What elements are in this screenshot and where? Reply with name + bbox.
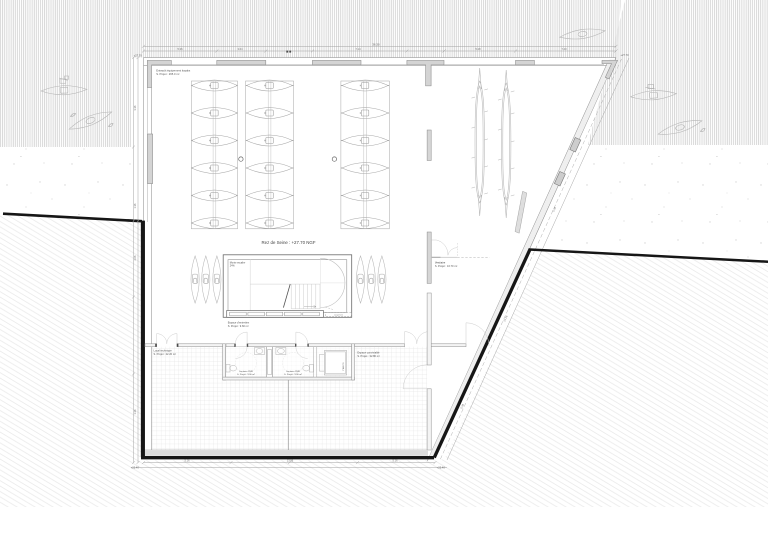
svg-text:Sanitaire PMR: Sanitaire PMR bbox=[286, 370, 301, 373]
svg-text:2.06: 2.06 bbox=[133, 255, 137, 261]
svg-text:S. Projet : 3.90 m²: S. Projet : 3.90 m² bbox=[284, 373, 302, 376]
svg-text:Vestiaire: Vestiaire bbox=[435, 260, 446, 264]
svg-text:Espace d’entretien: Espace d’entretien bbox=[228, 320, 250, 324]
svg-text:Local technique: Local technique bbox=[154, 349, 173, 353]
svg-text:5.16: 5.16 bbox=[184, 459, 190, 463]
svg-text:+27.70: +27.70 bbox=[134, 53, 143, 57]
svg-text:Entrepôt équipement kayaks: Entrepôt équipement kayaks bbox=[156, 69, 191, 73]
svg-text:5.28: 5.28 bbox=[475, 47, 481, 51]
svg-text:36.30: 36.30 bbox=[372, 42, 380, 46]
svg-text:+27.70: +27.70 bbox=[621, 53, 630, 57]
svg-text:3.64: 3.64 bbox=[237, 47, 243, 51]
svg-text:5.36: 5.36 bbox=[177, 47, 183, 51]
svg-text:rangement: rangement bbox=[334, 314, 344, 317]
svg-text:7.43: 7.43 bbox=[561, 47, 567, 51]
svg-text:S. Projet : 9.60 m²: S. Projet : 9.60 m² bbox=[228, 324, 249, 328]
svg-text:S. Projet : 22.20 m²: S. Projet : 22.20 m² bbox=[154, 352, 176, 356]
svg-text:+22.40: +22.40 bbox=[131, 466, 140, 470]
svg-text:+22.40: +22.40 bbox=[437, 466, 446, 470]
svg-text:Rez de Seine : +27.70 NGF: Rez de Seine : +27.70 NGF bbox=[261, 240, 315, 245]
svg-text:CTA ECS: CTA ECS bbox=[342, 362, 345, 371]
svg-text:5.16: 5.16 bbox=[392, 459, 398, 463]
svg-text:S. Projet : 265.0 m²: S. Projet : 265.0 m² bbox=[156, 72, 179, 76]
svg-text:S. Projet : 32.80 m²: S. Projet : 32.80 m² bbox=[357, 354, 379, 358]
svg-text:7.14: 7.14 bbox=[355, 47, 361, 51]
svg-text:S. Projet : 3.90 m²: S. Projet : 3.90 m² bbox=[237, 373, 255, 376]
svg-text:Sanitaire PMR: Sanitaire PMR bbox=[239, 370, 254, 373]
svg-text:1.36: 1.36 bbox=[133, 409, 137, 415]
svg-text:1.36: 1.36 bbox=[133, 203, 137, 209]
svg-text:S. Projet : 16.70 m²: S. Projet : 16.70 m² bbox=[435, 264, 457, 268]
svg-text:Espace convivialité: Espace convivialité bbox=[357, 350, 380, 354]
svg-text:3.36: 3.36 bbox=[133, 105, 137, 111]
svg-text:13.96: 13.96 bbox=[287, 459, 294, 463]
